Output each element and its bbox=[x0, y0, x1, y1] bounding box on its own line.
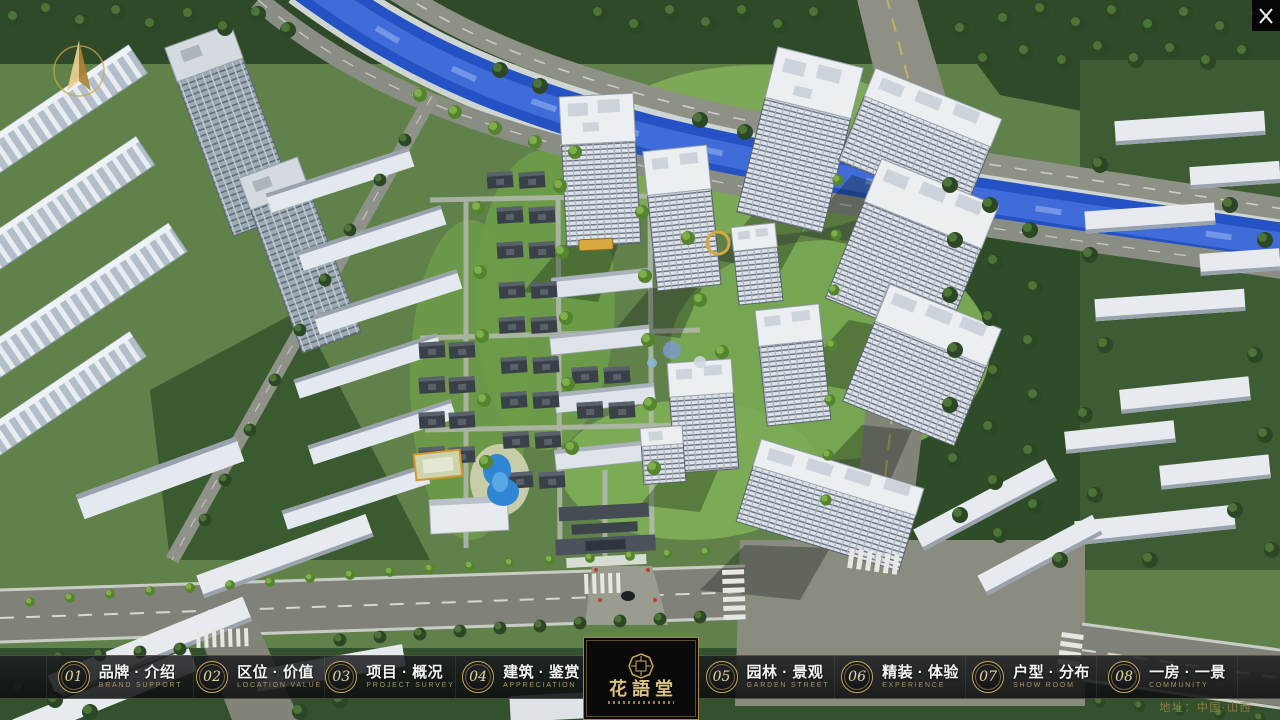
nav-item-label: 区位 · 价值 bbox=[237, 665, 314, 681]
nav-item-sublabel: APPRECIATION bbox=[503, 682, 576, 689]
masterplan-3d-map[interactable] bbox=[0, 0, 1280, 720]
nav-item-sublabel: COMMUNITY bbox=[1149, 682, 1208, 689]
app-window: 01 品牌 · 介绍 BRAND SUPPORT 02 区位 · 价值 LOCA… bbox=[0, 0, 1280, 720]
nav-item-number-badge: 06 bbox=[841, 661, 873, 693]
nav-item-number-badge: 07 bbox=[972, 661, 1004, 693]
nav-item-number-badge: 04 bbox=[462, 661, 494, 693]
nav-item-label: 园林 · 景观 bbox=[747, 665, 824, 681]
nav-item-number-badge: 05 bbox=[706, 661, 738, 693]
seal-icon bbox=[628, 653, 654, 679]
nav-item-label: 品牌 · 介绍 bbox=[99, 665, 176, 681]
nav-tail bbox=[1238, 656, 1280, 698]
nav-item-label: 户型 · 分布 bbox=[1013, 665, 1090, 681]
kindergarten bbox=[414, 450, 462, 481]
nav-item-sublabel: PROJECT SURVEY bbox=[366, 682, 454, 689]
nav-item-sublabel: EXPERIENCE bbox=[882, 682, 945, 689]
nav-item-location-value[interactable]: 02 区位 · 价值 LOCATION VALUE bbox=[194, 656, 325, 698]
nav-item-label: 一房 · 一景 bbox=[1149, 665, 1226, 681]
nav-item-sublabel: BRAND SUPPORT bbox=[99, 682, 183, 689]
nav-item-floorplans[interactable]: 07 户型 · 分布 SHOW ROOM bbox=[966, 656, 1097, 698]
nav-item-number-badge: 02 bbox=[196, 661, 228, 693]
nav-item-label: 项目 · 概况 bbox=[366, 665, 443, 681]
logo-tagline-decoration bbox=[608, 701, 674, 704]
nav-item-label: 建筑 · 鉴赏 bbox=[503, 665, 580, 681]
close-icon bbox=[1252, 1, 1280, 31]
logo-panel[interactable]: 花語堂 bbox=[583, 637, 699, 720]
close-button[interactable] bbox=[1252, 0, 1280, 31]
nav-spacer bbox=[0, 656, 47, 698]
nav-item-number-badge: 01 bbox=[58, 661, 90, 693]
nav-item-community[interactable]: 08 一房 · 一景 COMMUNITY bbox=[1097, 656, 1238, 698]
nav-item-number-badge: 08 bbox=[1108, 661, 1140, 693]
nav-item-project-survey[interactable]: 03 项目 · 概况 PROJECT SURVEY bbox=[325, 656, 456, 698]
logo-title: 花語堂 bbox=[604, 681, 678, 699]
nav-item-sublabel: GARDEN STREET bbox=[747, 682, 830, 689]
nav-item-brand-intro[interactable]: 01 品牌 · 介绍 BRAND SUPPORT bbox=[47, 656, 194, 698]
nav-item-sublabel: LOCATION VALUE bbox=[237, 682, 322, 689]
nav-item-sublabel: SHOW ROOM bbox=[1013, 682, 1075, 689]
nav-item-experience[interactable]: 06 精装 · 体验 EXPERIENCE bbox=[835, 656, 966, 698]
nav-item-garden-landscape[interactable]: 05 园林 · 景观 GARDEN STREET bbox=[701, 656, 835, 698]
nav-item-architecture[interactable]: 04 建筑 · 鉴赏 APPRECIATION bbox=[456, 656, 587, 698]
nav-item-label: 精装 · 体验 bbox=[882, 665, 959, 681]
project-address: 地址：中国·山西 bbox=[1159, 699, 1252, 715]
nav-item-number-badge: 03 bbox=[325, 661, 357, 693]
